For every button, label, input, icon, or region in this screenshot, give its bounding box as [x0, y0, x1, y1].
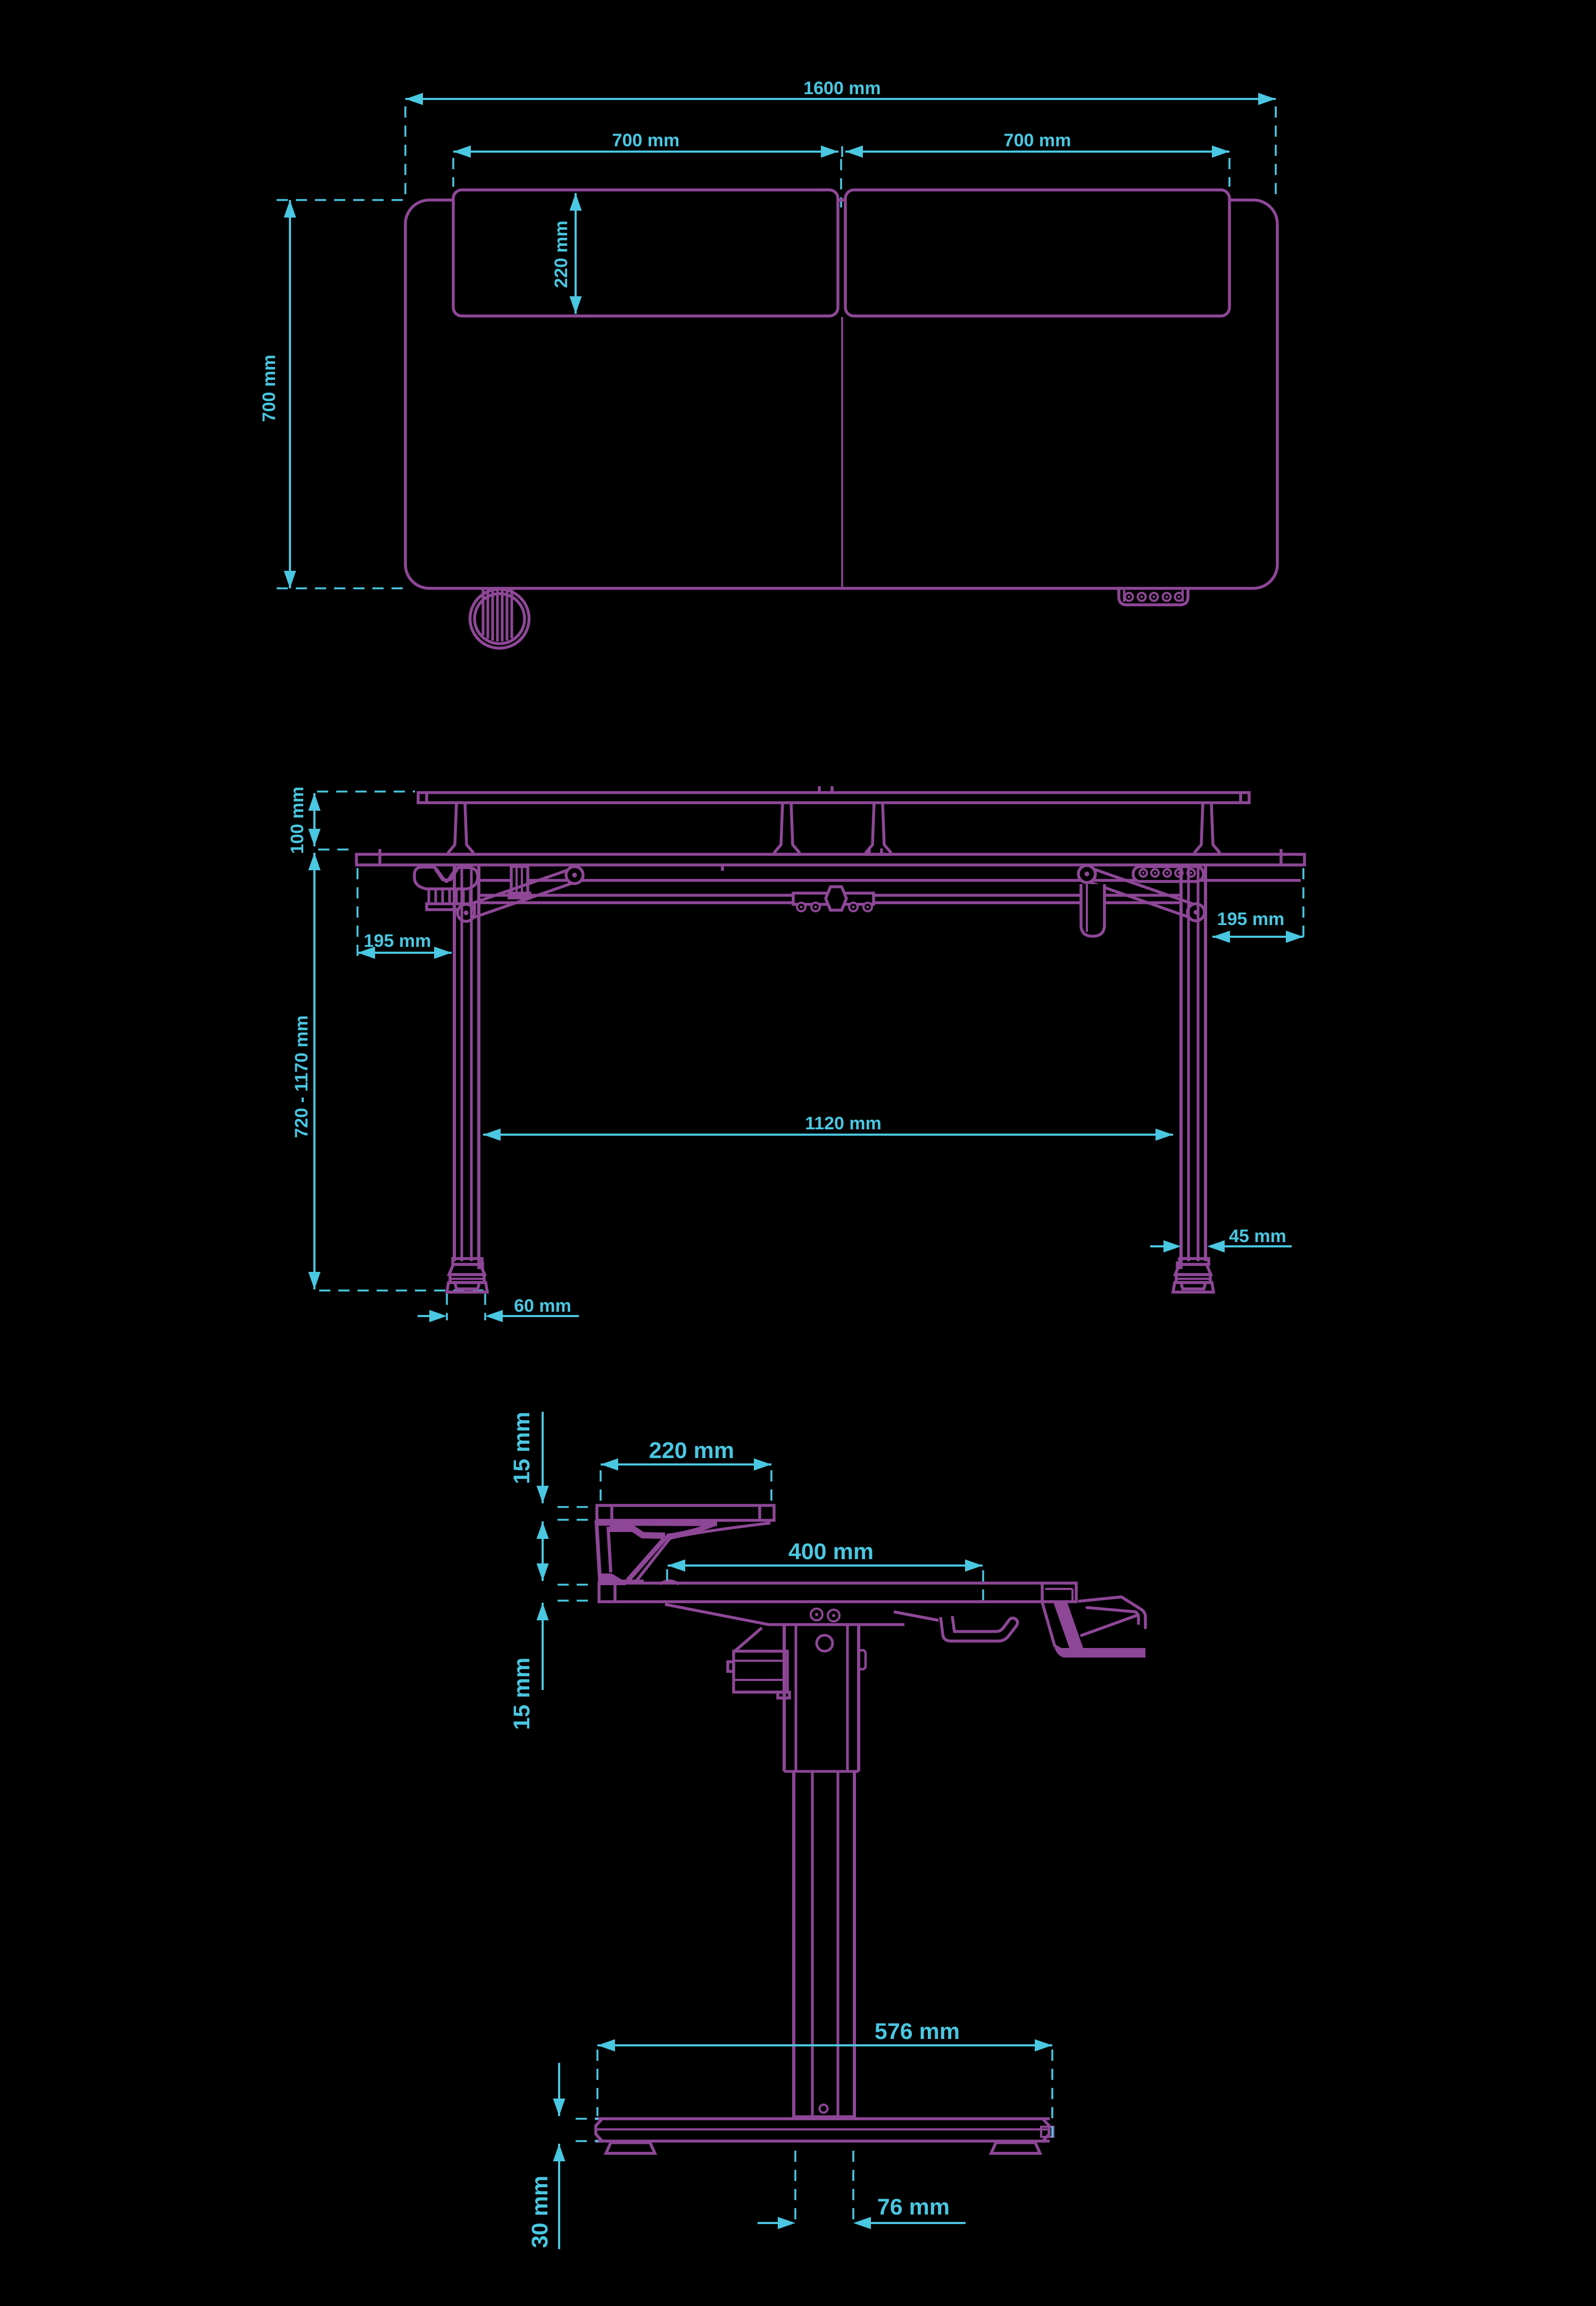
svg-text:1600 mm: 1600 mm: [803, 78, 881, 98]
svg-text:15 mm: 15 mm: [509, 1412, 535, 1484]
svg-text:700 mm: 700 mm: [612, 130, 680, 151]
svg-text:76 mm: 76 mm: [877, 2194, 950, 2220]
svg-text:576 mm: 576 mm: [875, 2019, 960, 2044]
svg-text:700 mm: 700 mm: [1004, 130, 1071, 151]
svg-text:15 mm: 15 mm: [509, 1658, 535, 1730]
svg-text:220 mm: 220 mm: [649, 1438, 734, 1463]
svg-text:30 mm: 30 mm: [527, 2176, 553, 2248]
svg-text:720 - 1170 mm: 720 - 1170 mm: [292, 1015, 312, 1138]
svg-text:195 mm: 195 mm: [364, 931, 431, 951]
svg-text:220 mm: 220 mm: [551, 221, 571, 288]
svg-text:700 mm: 700 mm: [259, 355, 279, 422]
svg-text:60 mm: 60 mm: [514, 1296, 571, 1316]
svg-text:400 mm: 400 mm: [788, 1539, 874, 1564]
svg-text:45 mm: 45 mm: [1229, 1226, 1286, 1246]
svg-text:100 mm: 100 mm: [287, 787, 307, 854]
svg-text:195 mm: 195 mm: [1217, 909, 1285, 929]
svg-text:1120 mm: 1120 mm: [805, 1113, 882, 1134]
